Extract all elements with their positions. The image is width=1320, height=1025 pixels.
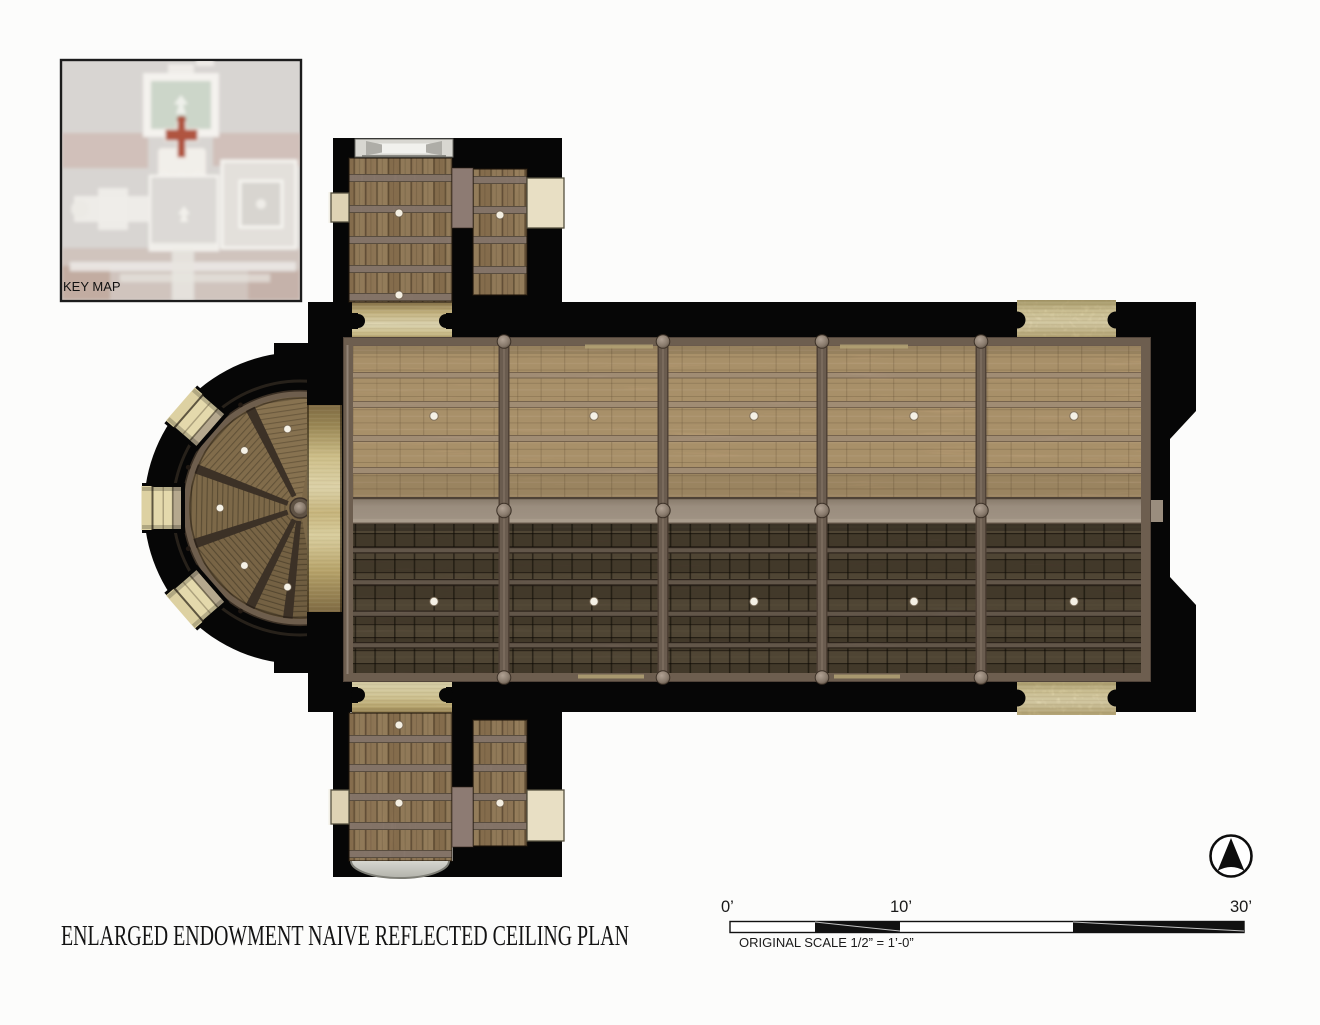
svg-text:ORIGINAL SCALE 1/2” = 1’-0”: ORIGINAL SCALE 1/2” = 1’-0” xyxy=(739,935,914,950)
svg-text:0’: 0’ xyxy=(721,898,734,916)
svg-text:KEY MAP: KEY MAP xyxy=(63,279,121,294)
svg-text:30’: 30’ xyxy=(1230,898,1252,916)
svg-text:ENLARGED ENDOWMENT NAIVE REFLE: ENLARGED ENDOWMENT NAIVE REFLECTED CEILI… xyxy=(61,921,629,952)
svg-text:10’: 10’ xyxy=(890,898,912,916)
